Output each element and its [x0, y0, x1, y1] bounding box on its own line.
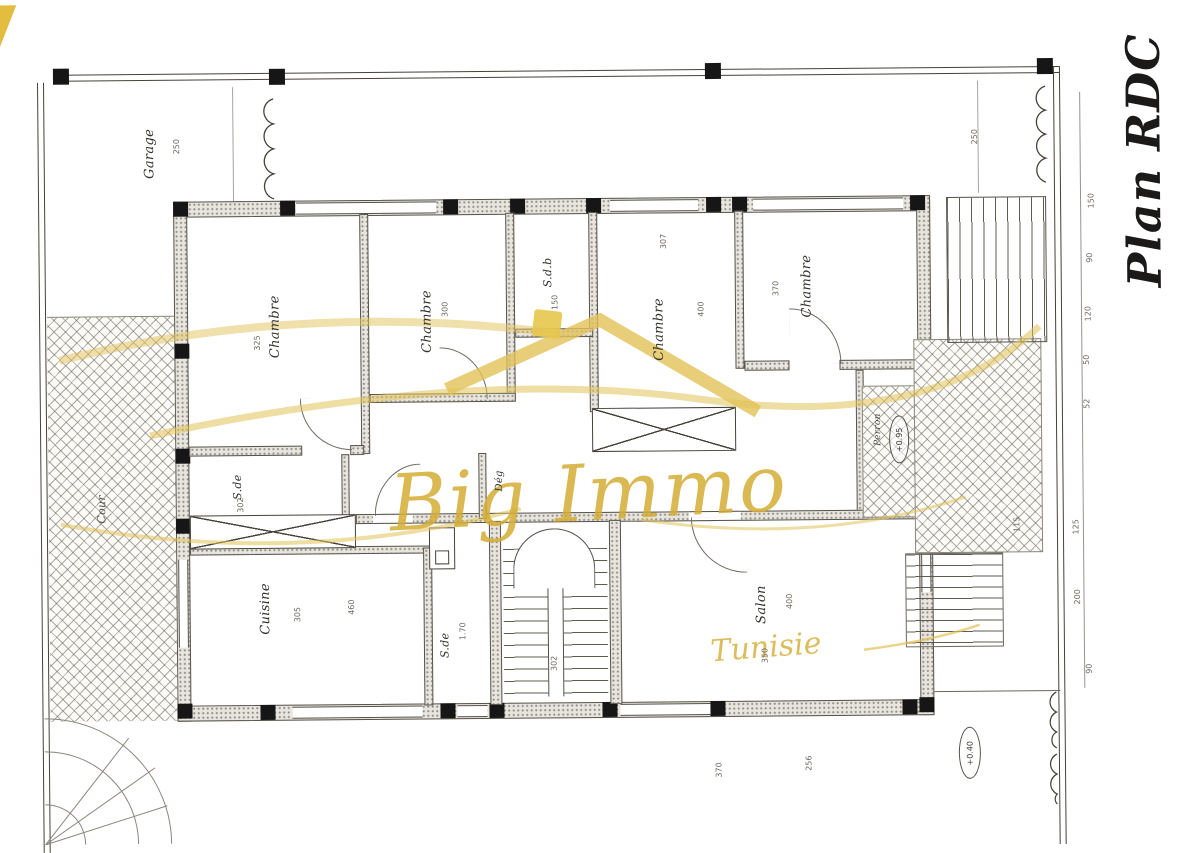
- dim-chambre3-a: 307: [659, 234, 668, 249]
- plan-title: Plan RDC: [1116, 33, 1172, 288]
- dim-right-a: 150: [1087, 193, 1096, 208]
- dim-chambre2: 300: [440, 302, 449, 317]
- room-label-chambre3: Chambre: [651, 298, 667, 361]
- room-label-sde2: S.de: [438, 633, 451, 659]
- dim-right-c: 120: [1083, 306, 1092, 321]
- dim-right-i: 90: [1085, 664, 1094, 674]
- room-label-garage: Garage: [142, 129, 157, 179]
- level-marker-entrance: +0.40: [959, 727, 981, 779]
- dim-garage-right: 250: [970, 129, 979, 144]
- room-label-salon: Salon: [754, 585, 769, 624]
- room-label-cuisine: Cuisine: [258, 583, 273, 635]
- room-label-chambre4: Chambre: [799, 255, 815, 318]
- room-label-cour: Cour: [95, 495, 108, 524]
- room-label-chambre2: Chambre: [419, 290, 435, 353]
- dim-right-e: 52: [1082, 399, 1091, 409]
- floor-plan: Big Immo Tunisie Garage Chambre Chambre …: [0, 0, 1199, 853]
- dim-salon-b: 350: [760, 648, 769, 663]
- dim-chambre4: 370: [771, 281, 780, 296]
- dim-right-f: 115: [1012, 517, 1021, 532]
- dim-sdb: 150: [550, 295, 559, 310]
- watermark-roof: [0, 0, 1199, 853]
- dim-cuisine-a: 305: [293, 607, 302, 622]
- dim-salon-a: 400: [785, 594, 794, 609]
- dim-right-g: 125: [1071, 519, 1080, 534]
- room-label-sde1: S.de: [231, 474, 244, 500]
- dim-stairs: 302: [550, 656, 559, 671]
- dim-garage-left: 250: [172, 139, 181, 154]
- dim-bottom-a: 370: [714, 762, 723, 777]
- dim-cuisine-b: 460: [347, 599, 356, 614]
- room-label-sdb: S.d.b: [541, 258, 554, 288]
- dim-right-h: 200: [1073, 589, 1082, 604]
- dim-bottom-b: 256: [804, 756, 813, 771]
- room-label-chambre1: Chambre: [267, 295, 283, 358]
- dim-right-d: 50: [1082, 355, 1091, 365]
- watermark-chimney: [532, 309, 563, 339]
- level-marker-terrace: +0.95: [889, 415, 909, 463]
- room-label-deg: Dég: [494, 470, 505, 491]
- room-label-perron: Perron: [873, 413, 883, 446]
- dim-sde1: 302: [236, 497, 245, 512]
- dim-chambre3-b: 400: [696, 301, 705, 316]
- dim-sde2: 1.70: [458, 622, 467, 640]
- dim-chambre1: 325: [253, 335, 262, 350]
- dim-right-b: 90: [1085, 253, 1094, 263]
